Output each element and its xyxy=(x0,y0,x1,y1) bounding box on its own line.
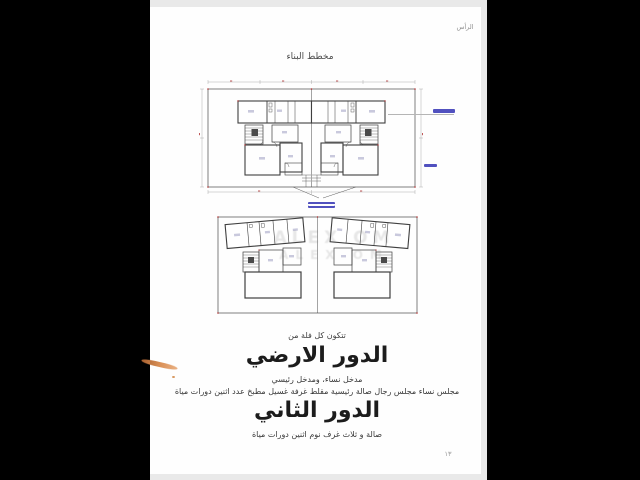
floor-plan-second xyxy=(215,210,425,320)
description-block: تتكون كل فلة من الدور الارضي مدخل نساء، … xyxy=(154,331,480,442)
second-floor-line1: صالة و ثلاث غرف نوم اثنين دورات مياة xyxy=(154,430,480,439)
orange-pen-dot xyxy=(172,376,175,378)
document-page: الرأس مخطط البناء xyxy=(150,0,487,480)
plan-annotation-leader xyxy=(388,114,454,115)
ground-floor-line2: مجلس نساء مجلس رجال صالة رئيسية مقلط غرف… xyxy=(154,387,480,396)
ground-floor-heading: الدور الارضي xyxy=(154,344,480,367)
floor-plan-ground xyxy=(198,78,424,200)
viewer-canvas: { "page": { "running_head": "الرأس", "ti… xyxy=(0,0,640,480)
page-title: مخطط البناء xyxy=(150,52,470,62)
running-head: الرأس xyxy=(448,23,482,31)
page-number: ١٣ xyxy=(438,450,458,458)
intro-line: تتكون كل فلة من xyxy=(154,331,480,340)
second-floor-heading: الدور الثاني xyxy=(154,399,480,422)
plan-annotation-right-bottom xyxy=(424,164,437,167)
villa-unit xyxy=(238,101,312,187)
ground-floor-line1: مدخل نساء، ومدخل رئيسي xyxy=(154,375,480,384)
villa-unit-upper xyxy=(225,218,305,298)
room-labels xyxy=(268,255,294,261)
plan-annotation-right-top xyxy=(433,109,455,113)
plan-caption-blue xyxy=(308,202,335,206)
dimension-marks xyxy=(199,81,423,192)
